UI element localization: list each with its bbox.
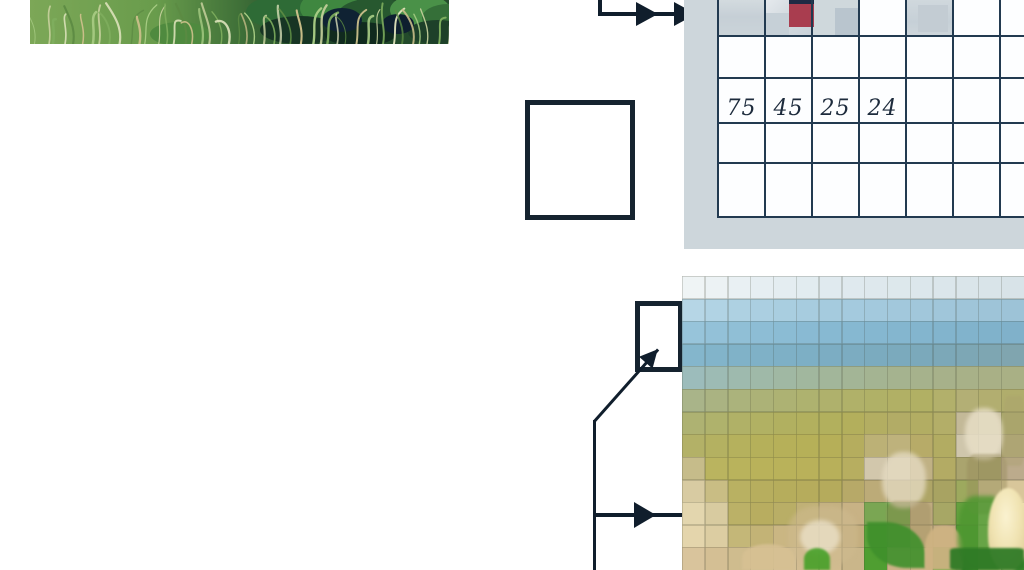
pixel-cell [842, 457, 865, 480]
pixel-cell [705, 412, 728, 435]
pixel-cell [682, 434, 705, 457]
pixel-cell [705, 547, 728, 570]
pixel-cell [864, 276, 887, 299]
pixel-cell [887, 389, 910, 412]
pixel-cell [956, 321, 979, 344]
pixel-cell [887, 344, 910, 367]
grid-hline [718, 35, 1024, 37]
pixel-cell [705, 525, 728, 548]
wheat-head-cluster-b [965, 408, 1003, 460]
pixel-cell [819, 457, 842, 480]
pixel-cell [728, 434, 751, 457]
pixel-cell [728, 299, 751, 322]
pixel-cell [682, 525, 705, 548]
pixel-cell [728, 457, 751, 480]
pixel-cell [887, 321, 910, 344]
patch-outline-large [525, 100, 635, 220]
pixel-cell [682, 480, 705, 503]
pixel-cell [864, 412, 887, 435]
pixel-cell [682, 502, 705, 525]
pixel-cell [705, 276, 728, 299]
shaded-sub-patch [765, 13, 789, 37]
pixel-cell [887, 412, 910, 435]
pixel-cell [773, 457, 796, 480]
pixel-cell [705, 321, 728, 344]
pixel-cell [887, 299, 910, 322]
pixel-cell [819, 480, 842, 503]
pixel-cell [910, 412, 933, 435]
pixel-cell [796, 434, 819, 457]
pixel-cell [750, 502, 773, 525]
pixel-cell [750, 366, 773, 389]
pixel-cell [682, 276, 705, 299]
pixel-cell [819, 389, 842, 412]
pixel-cell [796, 389, 819, 412]
bottom-connector-vertical-segment [593, 420, 596, 570]
pixel-value: 75 [718, 79, 765, 124]
pixel-cell [933, 412, 956, 435]
pixel-cell [773, 389, 796, 412]
pixel-cell [773, 344, 796, 367]
wheat-sketch-right [1004, 396, 1024, 466]
pixel-cell [864, 366, 887, 389]
pixel-cell [728, 321, 751, 344]
pixel-cell [728, 366, 751, 389]
pixelated-image [682, 276, 1024, 570]
pixel-cell [705, 434, 728, 457]
pixel-cell [750, 389, 773, 412]
pixel-cell [910, 344, 933, 367]
top-arrow-head-icon [636, 2, 658, 26]
pixel-cell [842, 480, 865, 503]
pixel-cell [796, 480, 819, 503]
pixel-cell [910, 366, 933, 389]
grass-photo-illustration [30, 0, 449, 44]
pixel-cell [978, 321, 1001, 344]
pixel-cell [728, 502, 751, 525]
pixel-cell [819, 344, 842, 367]
pixel-cell [887, 276, 910, 299]
pixel-cell [910, 299, 933, 322]
pixel-cell [933, 321, 956, 344]
pixel-cell [956, 276, 979, 299]
pixel-cell [933, 457, 956, 480]
pixel-cell [864, 434, 887, 457]
pixel-cell [773, 412, 796, 435]
pixel-cell [682, 547, 705, 570]
pixel-cell [728, 276, 751, 299]
pixel-cell [750, 412, 773, 435]
bottom-arrow-head-icon [634, 502, 656, 528]
pixel-cell [682, 344, 705, 367]
pixel-cell [956, 366, 979, 389]
pixel-cell [682, 457, 705, 480]
pixel-cell [705, 299, 728, 322]
pixel-cell [728, 412, 751, 435]
pixel-cell [956, 299, 979, 322]
pixel-cell [773, 276, 796, 299]
pixel-cell [1001, 299, 1024, 322]
grid-vline [905, 0, 907, 218]
figure-canvas: 75 45 25 24 [0, 0, 1024, 570]
pixel-cell [705, 366, 728, 389]
grid-hline [718, 77, 1024, 79]
pixel-cell [933, 299, 956, 322]
pixel-cell [750, 276, 773, 299]
pixel-cell [682, 321, 705, 344]
grid-vline [764, 0, 766, 218]
pixel-cell [705, 389, 728, 412]
pixel-cell [819, 366, 842, 389]
pixel-cell [796, 366, 819, 389]
pixel-cell [705, 480, 728, 503]
pixel-cell [773, 299, 796, 322]
pixel-cell [819, 299, 842, 322]
grid-vline [952, 0, 954, 218]
wheat-head-cluster-a [882, 452, 926, 508]
pixel-cell [842, 412, 865, 435]
pixel-cell [682, 389, 705, 412]
pixel-cell [796, 344, 819, 367]
pixel-cell [1001, 344, 1024, 367]
pixel-cell [796, 412, 819, 435]
pixel-cell [1001, 276, 1024, 299]
pixel-cell [978, 276, 1001, 299]
pixel-cell [728, 525, 751, 548]
pixel-cell [933, 276, 956, 299]
pixel-cell [773, 366, 796, 389]
pixel-cell [978, 299, 1001, 322]
pixel-cell [933, 480, 956, 503]
pixel-cell [796, 299, 819, 322]
pixel-value: 24 [859, 79, 906, 124]
pixel-cell [796, 276, 819, 299]
pixel-cell [864, 344, 887, 367]
pixel-cell [750, 344, 773, 367]
shaded-sub-patch [918, 5, 948, 32]
grass-photo [30, 0, 449, 44]
pixel-cell [750, 321, 773, 344]
pixel-cell [773, 480, 796, 503]
pixel-cell [864, 299, 887, 322]
pixel-cell [842, 389, 865, 412]
pixel-cell [933, 366, 956, 389]
pixel-cell [842, 434, 865, 457]
pixel-cell [728, 344, 751, 367]
pixel-cell [750, 299, 773, 322]
pixel-cell [1001, 321, 1024, 344]
pixel-cell [933, 344, 956, 367]
pixel-cell [933, 434, 956, 457]
pixel-cell [887, 366, 910, 389]
grid-vline [999, 0, 1001, 218]
pixel-cell [956, 344, 979, 367]
pixel-cell [933, 502, 956, 525]
pixel-cell [910, 276, 933, 299]
pixel-cell [750, 480, 773, 503]
pixel-cell [842, 299, 865, 322]
pixel-cell [910, 389, 933, 412]
pixel-cell [705, 457, 728, 480]
pixel-cell [773, 434, 796, 457]
pixel-cell [682, 366, 705, 389]
pixel-value: 25 [812, 79, 859, 124]
pixel-cell [796, 457, 819, 480]
pixel-cell [842, 321, 865, 344]
pixel-cell [796, 321, 819, 344]
pixel-cell [682, 299, 705, 322]
grid-vline [858, 0, 860, 218]
pixel-cell [728, 480, 751, 503]
pixel-cell [910, 321, 933, 344]
shaded-grid-cell [718, 0, 765, 37]
pixel-cell [773, 321, 796, 344]
pixel-cell [819, 321, 842, 344]
grid-hline [718, 162, 1024, 164]
pixel-cell [750, 434, 773, 457]
pixel-cell [750, 457, 773, 480]
grid-hline [718, 216, 1024, 218]
pixel-value: 45 [765, 79, 812, 124]
pixel-cell [819, 434, 842, 457]
pixel-cell [978, 366, 1001, 389]
pixel-cell [842, 366, 865, 389]
pixel-cell [864, 321, 887, 344]
pixel-cell [682, 412, 705, 435]
pixel-cell [728, 389, 751, 412]
pixel-cell [1001, 366, 1024, 389]
pixel-cell [842, 276, 865, 299]
grid-hline [718, 122, 1024, 124]
grid-vline [717, 0, 719, 218]
pixel-value-grid: 75 45 25 24 [718, 0, 1024, 218]
small-tan-cone [742, 544, 794, 570]
pixel-cell [819, 276, 842, 299]
pixel-cell [978, 344, 1001, 367]
shaded-sub-patch [835, 8, 859, 37]
pixel-cell [842, 344, 865, 367]
pixel-cell [819, 412, 842, 435]
pixel-cell [705, 344, 728, 367]
dark-green-bottom-right [950, 548, 1024, 570]
green-tuft-bottom-mid [804, 548, 830, 570]
pixel-cell [864, 389, 887, 412]
pixel-cell [705, 502, 728, 525]
pixel-cell [933, 389, 956, 412]
grid-vline [811, 0, 813, 218]
